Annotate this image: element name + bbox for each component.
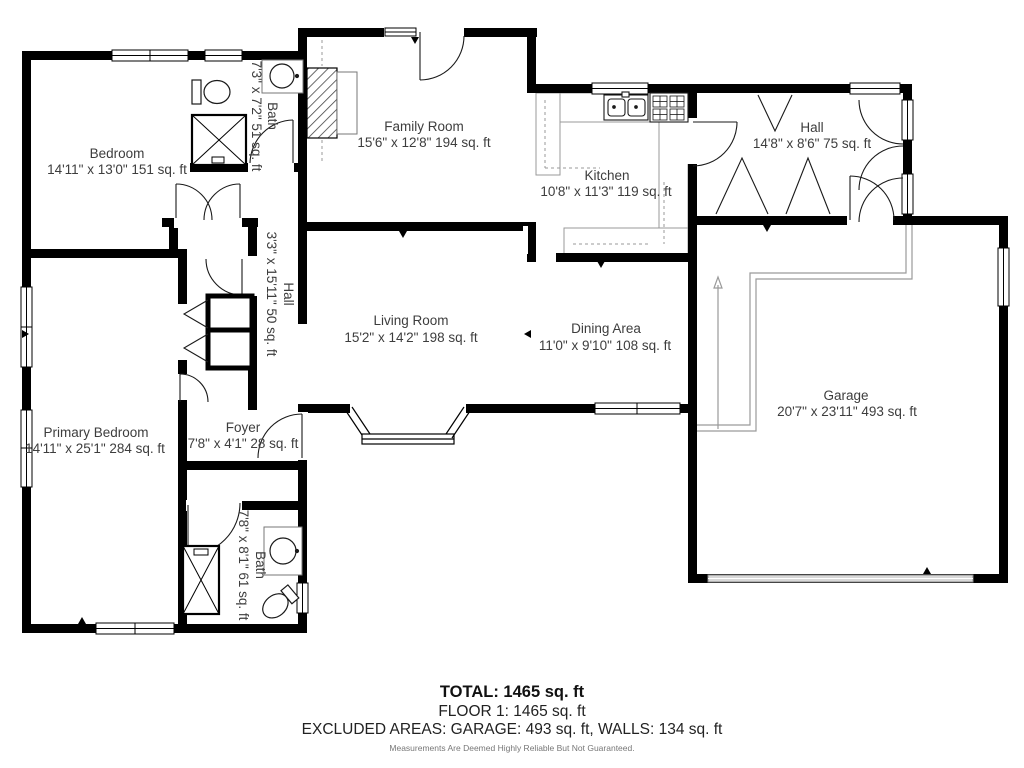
window [592,83,648,94]
room-labels: Bedroom 14'11" x 13'0" 151 sq. ft Bath 7… [25,61,917,621]
hall-top-label: Hall [800,120,823,135]
stairs-arrow [714,277,722,429]
bay-window [346,407,470,444]
primary-bedroom-label: Primary Bedroom [43,425,148,440]
bath-bottom-label: Bath [253,551,268,579]
sink-icon [262,60,303,93]
kitchen-label: Kitchen [584,168,629,183]
foyer-label: Foyer [226,420,261,435]
shower-icon [192,115,246,165]
dining-area-dims: 11'0" x 9'10" 108 sq. ft [539,338,672,353]
toilet-icon [258,583,300,623]
closets [184,95,830,368]
bedroom-double-door [176,184,240,220]
window [385,28,416,36]
living-room-label: Living Room [373,313,448,328]
bedroom-dims: 14'11" x 13'0" 151 sq. ft [47,162,187,177]
floor-plan-canvas: Bedroom 14'11" x 13'0" 151 sq. ft Bath 7… [0,0,1024,768]
window [96,623,174,634]
total-area-text: TOTAL: 1465 sq. ft [440,683,585,701]
floor-plan-page: Bedroom 14'11" x 13'0" 151 sq. ft Bath 7… [0,0,1024,768]
foyer-dims: 7'8" x 4'1" 28 sq. ft [188,436,299,451]
family-room-label: Family Room [384,119,464,134]
bath-top-label: Bath [265,102,280,130]
garage-door [708,575,973,582]
dining-area-label: Dining Area [571,321,641,336]
bath-bottom-dims: 7'8" x 8'1" 61 sq. ft [236,510,251,621]
entry-door [420,32,464,80]
hall-top-dims: 14'8" x 8'6" 75 sq. ft [753,136,872,151]
kitchen-hall-door [693,122,737,166]
primary-entry-door [206,259,242,295]
windows [21,28,1009,634]
kitchen-sink-icon [604,92,648,120]
bedroom-label: Bedroom [90,146,145,161]
bath-top-dims: 7'3" x 7'2" 51 sq. ft [249,61,264,172]
hall-closet-doors [716,95,830,214]
window [850,83,900,94]
fireplace-icon [307,68,357,138]
disclaimer-text: Measurements Are Deemed Highly Reliable … [389,743,634,753]
living-room-dims: 15'2" x 14'2" 198 sq. ft [344,330,478,345]
sink-icon [264,527,302,575]
window [595,403,680,414]
window [902,100,913,140]
garage-walkway [697,225,912,431]
family-room-dims: 15'6" x 12'8" 194 sq. ft [357,135,491,150]
summary-footer: TOTAL: 1465 sq. ft FLOOR 1: 1465 sq. ft … [302,683,723,753]
toilet-icon [192,80,230,104]
walls [22,28,1008,633]
kitchen-dims: 10'8" x 11'3" 119 sq. ft [540,184,672,199]
hall-mid-label: Hall [281,282,296,305]
window [998,248,1009,306]
excluded-area-text: EXCLUDED AREAS: GARAGE: 493 sq. ft, WALL… [302,721,723,738]
floor-area-text: FLOOR 1: 1465 sq. ft [438,703,586,720]
window [112,50,188,61]
window [205,50,242,61]
garage-label: Garage [823,388,868,403]
garage-dims: 20'7" x 23'11" 493 sq. ft [777,404,917,419]
bifold-doors [184,300,208,362]
primary-bedroom-dims: 14'11" x 25'1" 284 sq. ft [25,441,165,456]
hall-garage-door [850,176,894,220]
primary-lower-door [180,374,208,402]
window [902,174,913,214]
shower-icon [183,546,219,614]
stove-icon [650,93,688,122]
window [21,287,32,367]
hall-mid-dims: 3'3" x 15'11" 50 sq. ft [264,232,279,357]
